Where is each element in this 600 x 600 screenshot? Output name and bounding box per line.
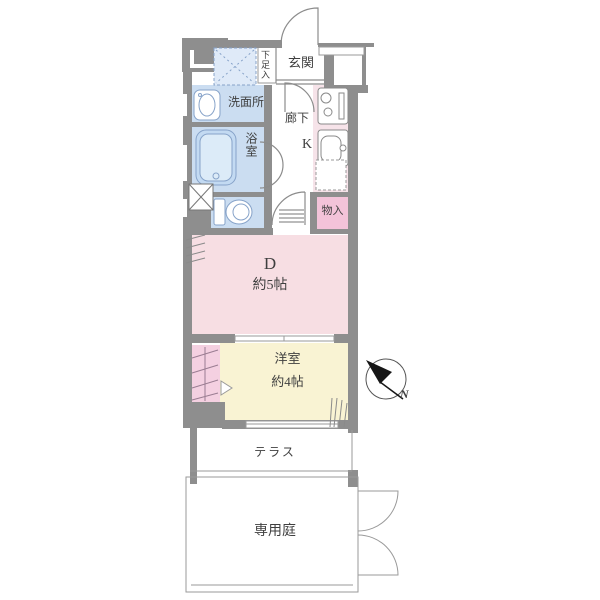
wall-storage-left [310, 192, 317, 233]
compass-needle-icon [366, 360, 392, 384]
wall-wash-bath-divider [192, 122, 264, 127]
wall-dining-west-right [334, 334, 358, 343]
storage-label: 物入 [317, 206, 348, 217]
stove-icon [318, 88, 348, 124]
genkan-label: 玄関 [276, 56, 326, 69]
refrigerator-space-icon [316, 160, 346, 190]
wall-garden-right-block [348, 470, 358, 487]
pipe-shaft-icon [189, 184, 213, 210]
terrace-label: テラス [235, 446, 315, 458]
western-room-size-label: 約4帖 [255, 375, 320, 388]
gate-door-bottom-arc [358, 535, 398, 575]
wall-bath-toilet-divider [210, 192, 264, 197]
wall-toilet-bottom [183, 228, 273, 235]
dining-label: D [240, 255, 300, 272]
kitchen-label: K [298, 138, 316, 152]
laundry-space-icon [214, 48, 256, 85]
compass-n-label: N [400, 388, 409, 400]
floor-plan: 玄関 下足入 洗面所 浴室 廊下 K 物入 D 約5帖 洋室 約4帖 テラス 専… [0, 0, 600, 600]
washbasin-icon [194, 90, 220, 120]
garden-label: 専用庭 [230, 525, 320, 539]
garden-gate-doors [358, 491, 398, 575]
entrance-door-arc [281, 8, 318, 45]
wall-storage-bottom [310, 229, 358, 234]
corridor-top-line [318, 43, 374, 47]
floor-plan-drawing [0, 0, 600, 600]
gate-door-top-arc [358, 491, 398, 531]
wall-terrace-left [190, 428, 197, 484]
window-bathroom-icon [181, 145, 187, 181]
bathroom-label: 浴室 [245, 132, 257, 158]
wall-top [226, 40, 282, 48]
toilet-icon [214, 199, 252, 225]
corridor-strip [319, 47, 364, 55]
hallway-label: 廊下 [280, 112, 314, 124]
washroom-label: 洗面所 [222, 96, 270, 108]
wall-left [183, 72, 192, 428]
window-toilet-icon [181, 199, 187, 217]
western-room-label: 洋室 [255, 352, 320, 365]
wall-dining-west-left [191, 334, 235, 343]
window-washroom-icon [181, 94, 187, 116]
wall-right [348, 93, 358, 433]
wall-closet-bottom-block [186, 402, 225, 428]
dining-size-label: 約5帖 [240, 279, 300, 293]
shelf-line-v [190, 50, 194, 68]
shoe-storage-label: 下足入 [260, 50, 269, 80]
bathtub-icon [196, 130, 236, 185]
